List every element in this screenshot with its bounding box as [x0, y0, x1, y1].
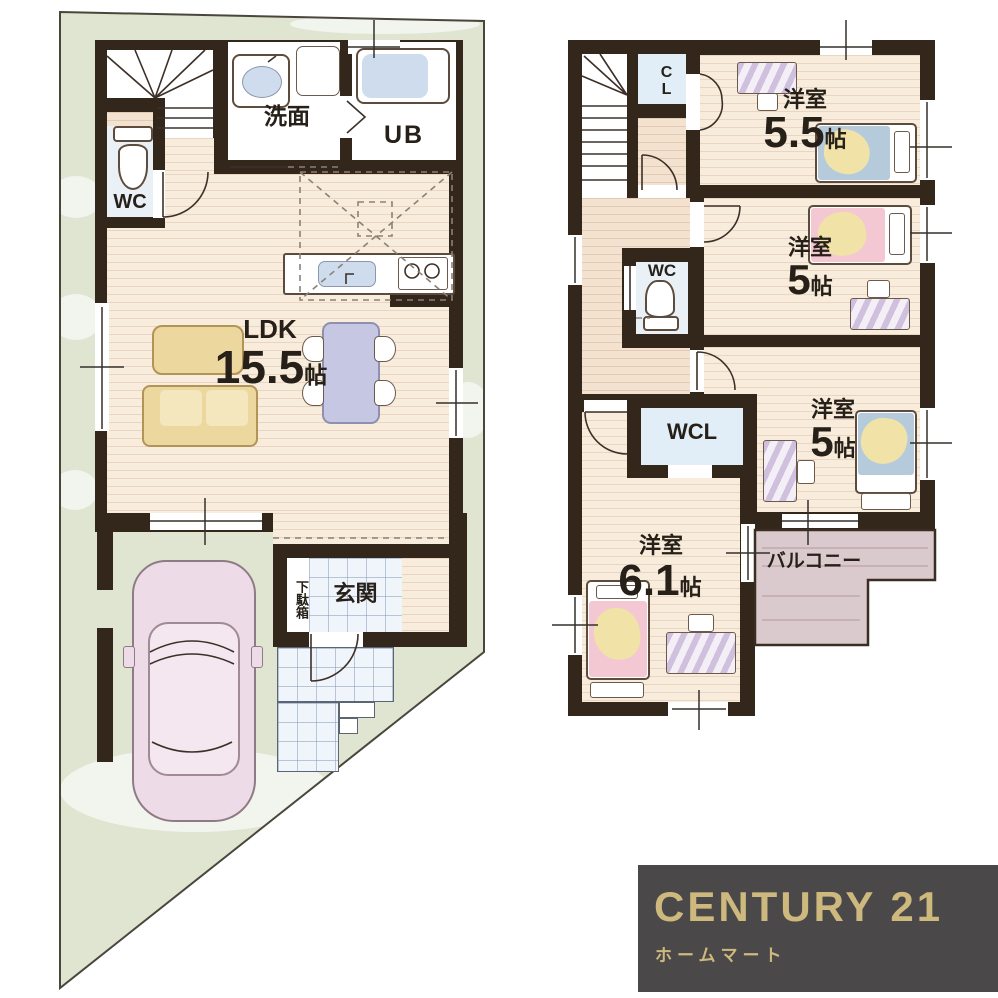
entrance-label: 玄関: [309, 582, 402, 605]
bedroom-b-size: 5帖: [755, 256, 865, 304]
bedroom-c-size: 5帖: [778, 418, 888, 466]
bath-label: UB: [352, 122, 456, 148]
closet-cl-label: CL: [650, 60, 674, 102]
floor-plan-sheet: 洗面 UB WC LDK 15.5帖 玄関 下駄箱 CL 洋室 5.5帖 洋室 …: [0, 0, 998, 998]
wc-2f-label: WC: [636, 262, 688, 280]
wc-1f-label: WC: [104, 192, 156, 213]
bedroom-a-size: 5.5帖: [735, 108, 875, 158]
washroom-label: 洗面: [232, 104, 342, 128]
wcl-label: WCL: [641, 420, 743, 443]
bedroom-d-size-unit: 帖: [680, 570, 702, 602]
bedroom-b-size-unit: 帖: [811, 269, 833, 301]
logo-brand-text: CENTURY 21: [654, 883, 943, 931]
shoe-cabinet-label: 下駄箱: [288, 564, 308, 634]
ldk-size-number: 15.5: [215, 340, 305, 394]
century21-logo: CENTURY 21 ホームマート: [638, 865, 998, 992]
balcony-label: バルコニー: [758, 552, 870, 572]
bedroom-d-size: 6.1帖: [590, 556, 730, 606]
bedroom-d-size-number: 6.1: [618, 556, 679, 606]
balcony-shape: [755, 530, 935, 645]
bedroom-c-size-number: 5: [810, 418, 833, 466]
bedroom-a-size-unit: 帖: [825, 122, 847, 154]
bedroom-c-size-unit: 帖: [834, 431, 856, 463]
bedroom-d-name: 洋室: [606, 534, 716, 557]
logo-company-text: ホームマート: [655, 941, 787, 966]
ldk-size-unit: 帖: [304, 356, 327, 390]
bedroom-a-size-number: 5.5: [763, 108, 824, 158]
ldk-size: 15.5帖: [196, 340, 346, 394]
bedroom-b-size-number: 5: [787, 256, 810, 304]
